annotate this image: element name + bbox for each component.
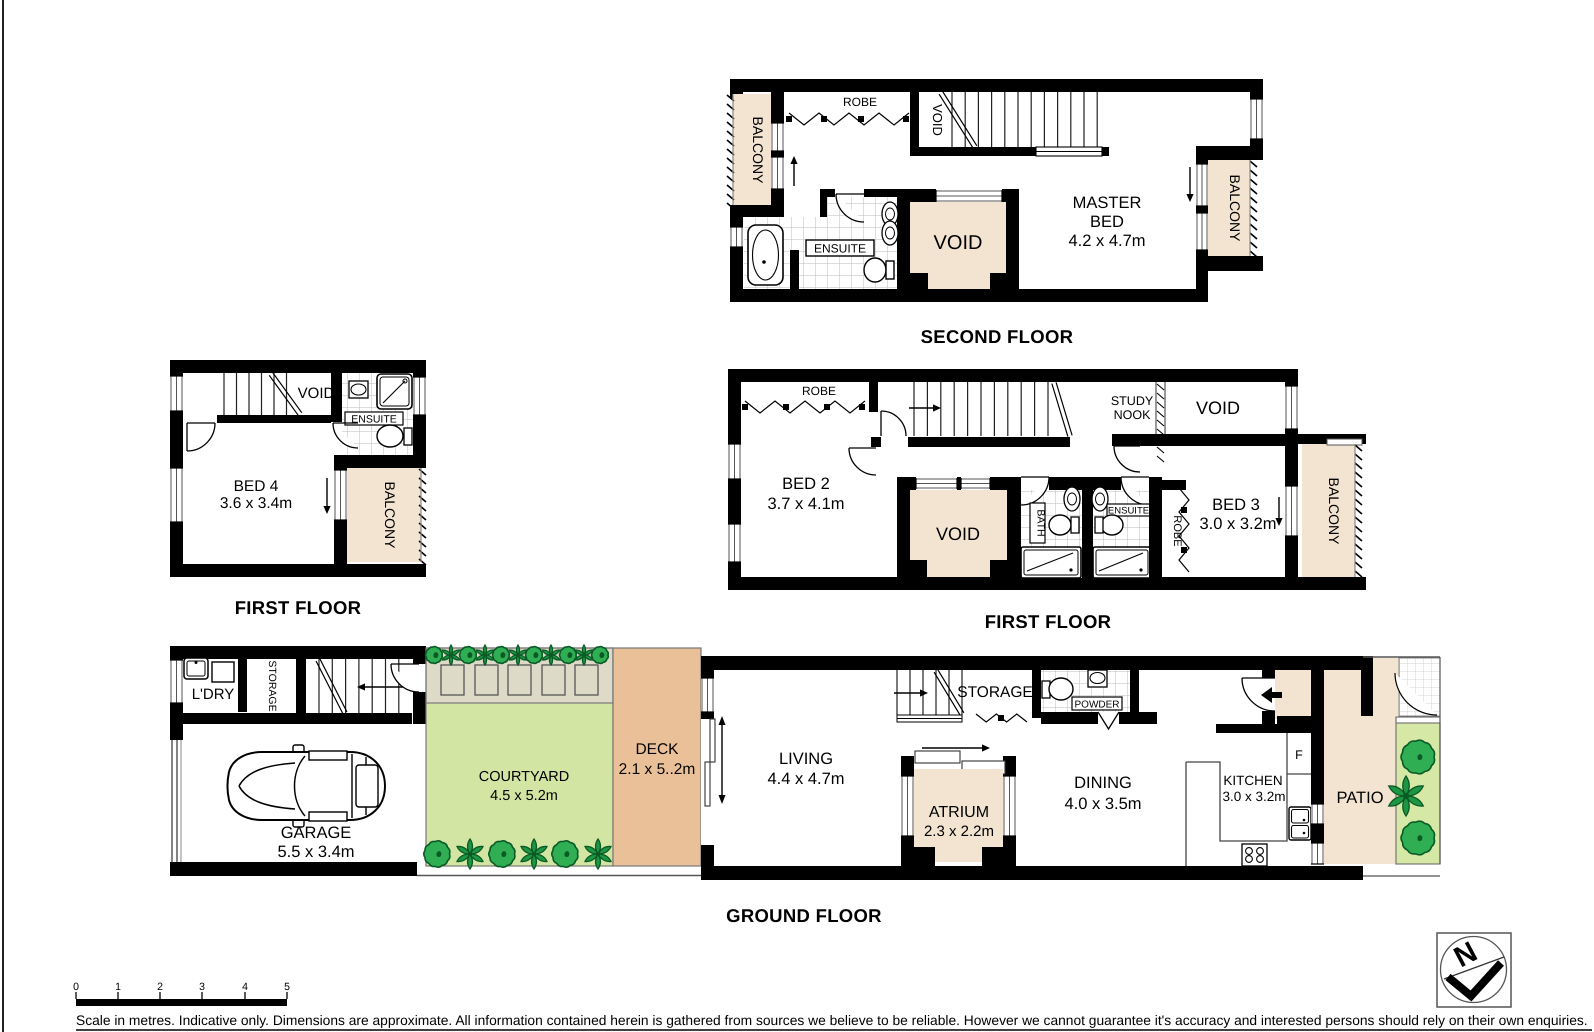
- svg-text:LIVING: LIVING: [779, 750, 833, 768]
- svg-text:GARAGE: GARAGE: [281, 824, 352, 842]
- svg-text:MASTER: MASTER: [1073, 194, 1142, 212]
- svg-text:SECOND FLOOR: SECOND FLOOR: [921, 326, 1074, 347]
- svg-text:Scale in metres. Indicative on: Scale in metres. Indicative only. Dimens…: [76, 1013, 1588, 1028]
- svg-text:1: 1: [115, 981, 121, 993]
- svg-text:4.0 x 3.5m: 4.0 x 3.5m: [1064, 795, 1141, 813]
- svg-text:KITCHEN: KITCHEN: [1223, 773, 1282, 788]
- svg-text:0: 0: [73, 981, 79, 993]
- svg-text:BALCONY: BALCONY: [382, 482, 398, 550]
- svg-text:3.7 x 4.1m: 3.7 x 4.1m: [767, 495, 844, 513]
- svg-text:3.0 x 3.2m: 3.0 x 3.2m: [1222, 789, 1285, 804]
- svg-text:BATH: BATH: [1035, 509, 1047, 536]
- svg-text:3: 3: [199, 981, 205, 993]
- svg-text:BALCONY: BALCONY: [1326, 478, 1342, 546]
- svg-text:2.3 x 2.2m: 2.3 x 2.2m: [924, 823, 994, 840]
- svg-text:VOID: VOID: [934, 232, 983, 254]
- svg-text:DINING: DINING: [1074, 774, 1132, 792]
- svg-text:2: 2: [157, 981, 163, 993]
- svg-text:COURTYARD: COURTYARD: [479, 769, 570, 785]
- svg-text:ENSUITE: ENSUITE: [814, 242, 866, 256]
- svg-text:5: 5: [284, 981, 290, 993]
- svg-text:BALCONY: BALCONY: [1227, 175, 1243, 243]
- svg-text:4.4 x 4.7m: 4.4 x 4.7m: [767, 770, 844, 788]
- svg-text:VOID: VOID: [298, 385, 335, 402]
- svg-text:FIRST FLOOR: FIRST FLOOR: [235, 597, 362, 618]
- svg-text:ROBE: ROBE: [843, 95, 877, 109]
- svg-text:5.5 x 3.4m: 5.5 x 3.4m: [277, 843, 354, 861]
- svg-text:VOID: VOID: [1196, 398, 1240, 418]
- svg-text:VOID: VOID: [930, 104, 945, 136]
- svg-text:ROBE: ROBE: [802, 384, 836, 398]
- svg-text:BED 4: BED 4: [234, 478, 279, 495]
- svg-text:ROBE: ROBE: [1171, 515, 1183, 546]
- svg-text:PATIO: PATIO: [1336, 789, 1383, 807]
- svg-text:L'DRY: L'DRY: [192, 686, 235, 703]
- svg-text:STUDY: STUDY: [1111, 394, 1154, 408]
- svg-text:FIRST FLOOR: FIRST FLOOR: [985, 611, 1112, 632]
- svg-text:4: 4: [242, 981, 248, 993]
- svg-text:3.0 x 3.2m: 3.0 x 3.2m: [1199, 515, 1276, 533]
- svg-text:BED 3: BED 3: [1212, 496, 1260, 514]
- svg-text:F: F: [1295, 748, 1303, 762]
- svg-text:POWDER: POWDER: [1075, 700, 1120, 711]
- svg-text:VOID: VOID: [936, 524, 980, 544]
- svg-text:ENSUITE: ENSUITE: [351, 414, 397, 426]
- svg-text:GROUND FLOOR: GROUND FLOOR: [726, 905, 882, 926]
- svg-text:STORAGE: STORAGE: [957, 684, 1033, 701]
- svg-text:BED 2: BED 2: [782, 475, 830, 493]
- svg-text:2.1 x 5..2m: 2.1 x 5..2m: [619, 761, 696, 778]
- svg-text:3.6 x 3.4m: 3.6 x 3.4m: [220, 495, 292, 512]
- svg-text:4.2 x 4.7m: 4.2 x 4.7m: [1068, 232, 1145, 250]
- svg-text:DECK: DECK: [635, 741, 679, 758]
- svg-text:BED: BED: [1090, 213, 1124, 231]
- svg-text:NOOK: NOOK: [1114, 408, 1151, 422]
- svg-text:BALCONY: BALCONY: [750, 117, 766, 185]
- svg-text:4.5 x 5.2m: 4.5 x 5.2m: [490, 788, 558, 804]
- svg-text:ATRIUM: ATRIUM: [929, 804, 989, 821]
- svg-text:STORAGE: STORAGE: [266, 660, 278, 711]
